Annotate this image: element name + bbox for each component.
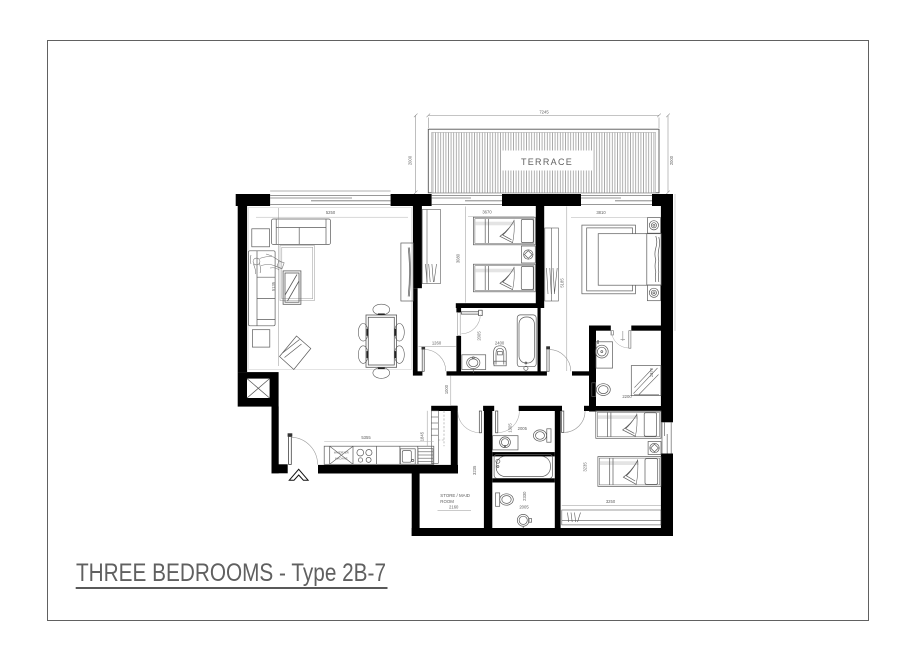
- svg-text:5355: 5355: [361, 435, 371, 440]
- svg-text:3080: 3080: [455, 253, 460, 263]
- svg-text:3235: 3235: [583, 462, 588, 472]
- svg-text:5250: 5250: [326, 210, 336, 215]
- svg-text:2330: 2330: [522, 491, 527, 501]
- svg-text:5135: 5135: [271, 281, 276, 291]
- svg-text:1260: 1260: [432, 340, 442, 345]
- svg-text:5185: 5185: [559, 278, 564, 288]
- svg-text:STORE / MAID: STORE / MAID: [440, 493, 470, 498]
- svg-text:ROOM: ROOM: [440, 499, 454, 504]
- svg-text:1845: 1845: [419, 431, 424, 441]
- svg-text:WM/DRYER: WM/DRYER: [334, 451, 349, 455]
- svg-text:2000: 2000: [669, 155, 674, 165]
- svg-text:MACHINE: MACHINE: [335, 457, 348, 461]
- svg-text:1305: 1305: [508, 423, 513, 433]
- svg-text:2000: 2000: [408, 155, 413, 165]
- svg-text:TERRACE: TERRACE: [521, 157, 573, 167]
- svg-text:7245: 7245: [539, 110, 549, 115]
- svg-text:2005: 2005: [518, 426, 528, 431]
- svg-text:3250: 3250: [606, 499, 616, 504]
- svg-text:THREE BEDROOMS - Type 2B-7: THREE BEDROOMS - Type 2B-7: [76, 559, 386, 587]
- svg-text:2160: 2160: [449, 505, 459, 510]
- svg-text:2005: 2005: [476, 331, 481, 341]
- svg-text:3670: 3670: [482, 209, 492, 214]
- svg-text:2005: 2005: [519, 504, 529, 509]
- svg-text:1000: 1000: [444, 384, 449, 394]
- svg-text:2370: 2370: [649, 367, 654, 377]
- svg-text:3810: 3810: [596, 210, 606, 215]
- svg-text:2200: 2200: [622, 394, 632, 399]
- svg-text:3235: 3235: [472, 465, 477, 475]
- svg-text:2400: 2400: [495, 341, 505, 346]
